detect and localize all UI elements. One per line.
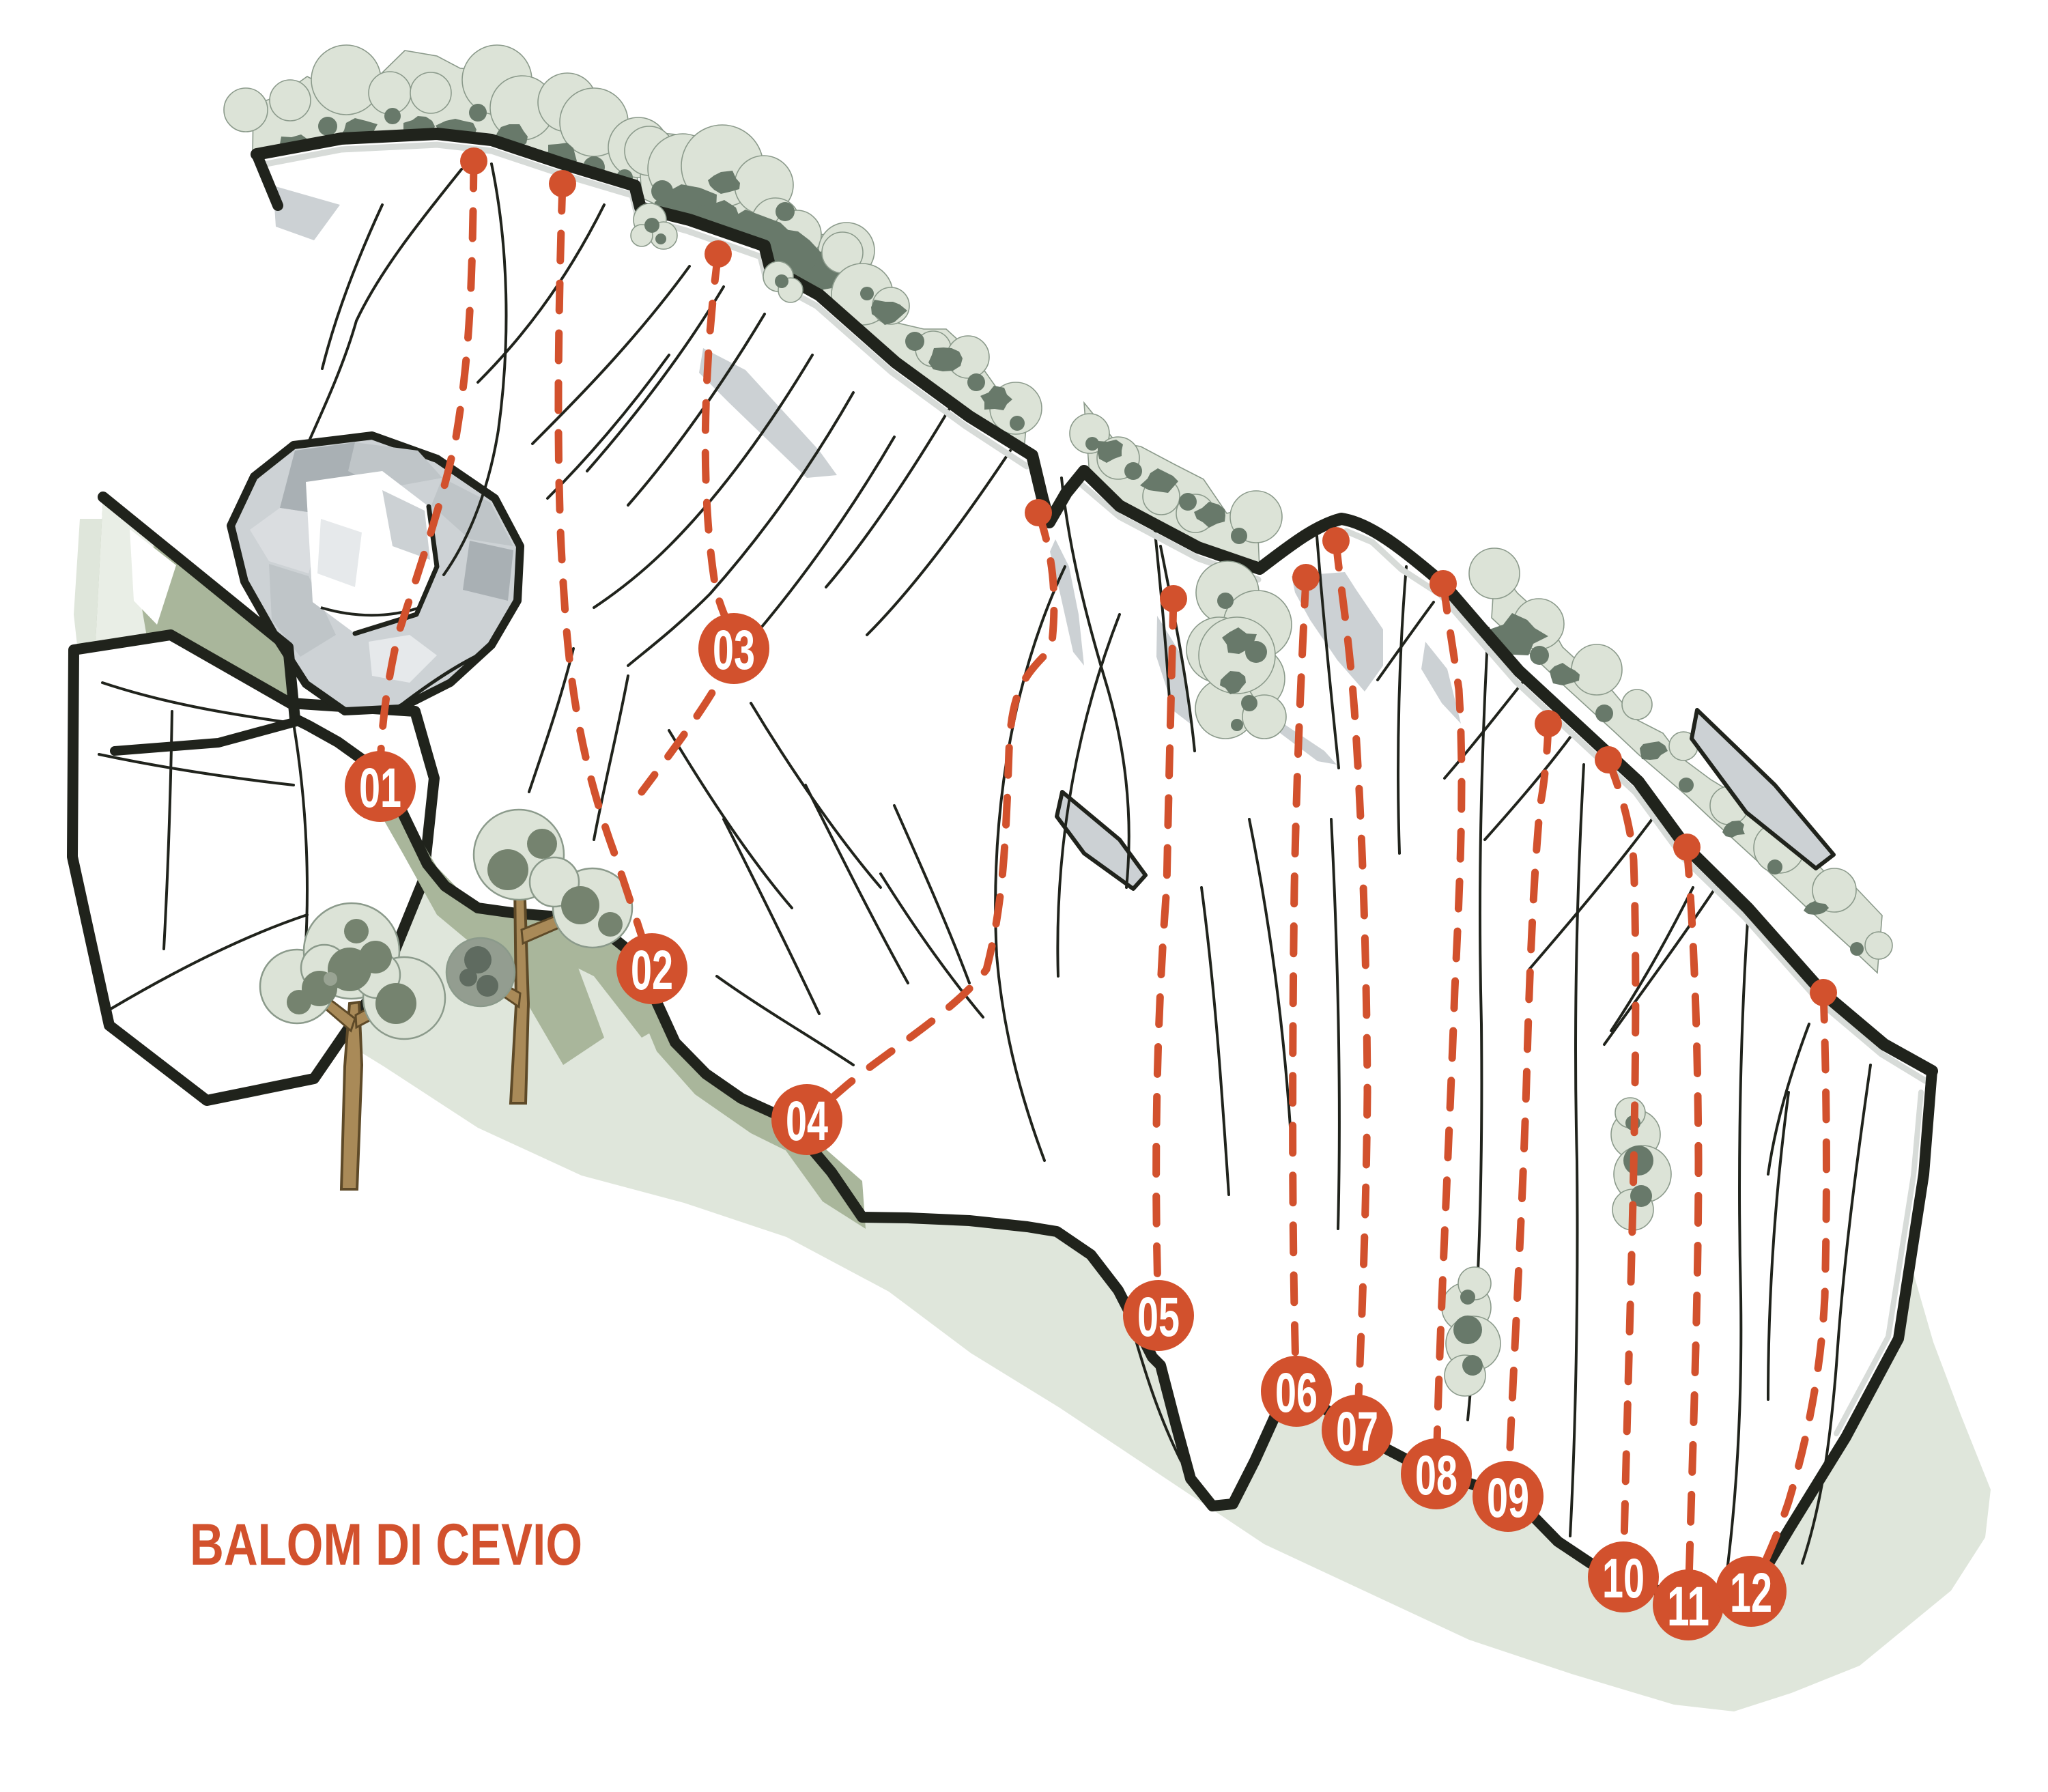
svg-text:04: 04 [786, 1090, 828, 1152]
svg-text:BALOM DI CEVIO: BALOM DI CEVIO [190, 1512, 582, 1578]
svg-text:07: 07 [1336, 1401, 1378, 1463]
svg-text:02: 02 [631, 939, 673, 1001]
svg-text:08: 08 [1415, 1445, 1457, 1507]
svg-text:12: 12 [1730, 1562, 1772, 1624]
svg-text:10: 10 [1602, 1548, 1645, 1610]
svg-text:09: 09 [1487, 1467, 1529, 1529]
svg-text:05: 05 [1137, 1286, 1180, 1348]
svg-text:01: 01 [359, 757, 401, 819]
svg-text:11: 11 [1667, 1576, 1709, 1638]
svg-text:03: 03 [713, 619, 755, 681]
svg-text:06: 06 [1275, 1362, 1318, 1424]
